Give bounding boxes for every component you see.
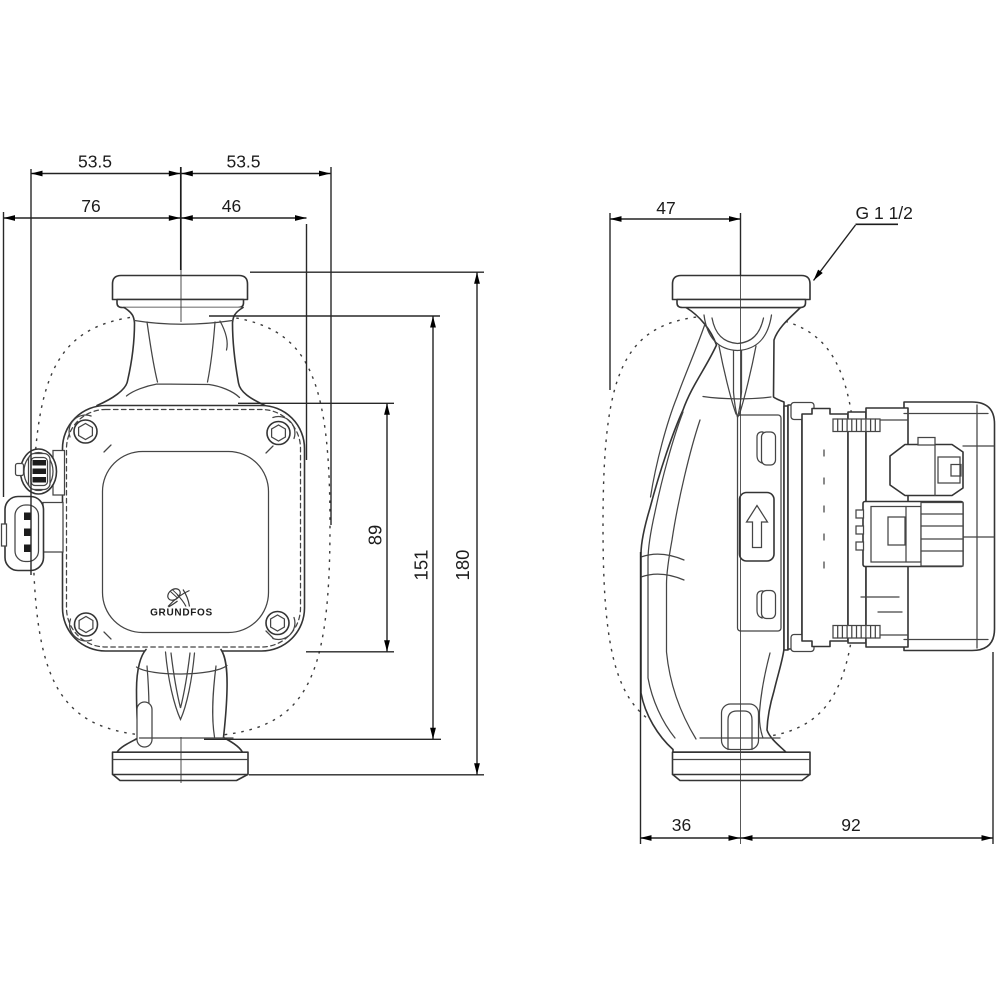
svg-text:53.5: 53.5	[226, 152, 260, 172]
svg-text:151: 151	[411, 550, 432, 581]
svg-text:46: 46	[222, 196, 241, 216]
svg-text:89: 89	[365, 525, 386, 546]
svg-text:180: 180	[452, 550, 473, 581]
svg-text:76: 76	[81, 196, 100, 216]
svg-text:92: 92	[841, 815, 860, 835]
svg-text:GRUNDFOS: GRUNDFOS	[150, 608, 213, 619]
svg-text:36: 36	[672, 815, 691, 835]
svg-text:53.5: 53.5	[78, 152, 112, 172]
svg-text:47: 47	[656, 198, 675, 218]
svg-text:G 1 1/2: G 1 1/2	[856, 203, 913, 223]
